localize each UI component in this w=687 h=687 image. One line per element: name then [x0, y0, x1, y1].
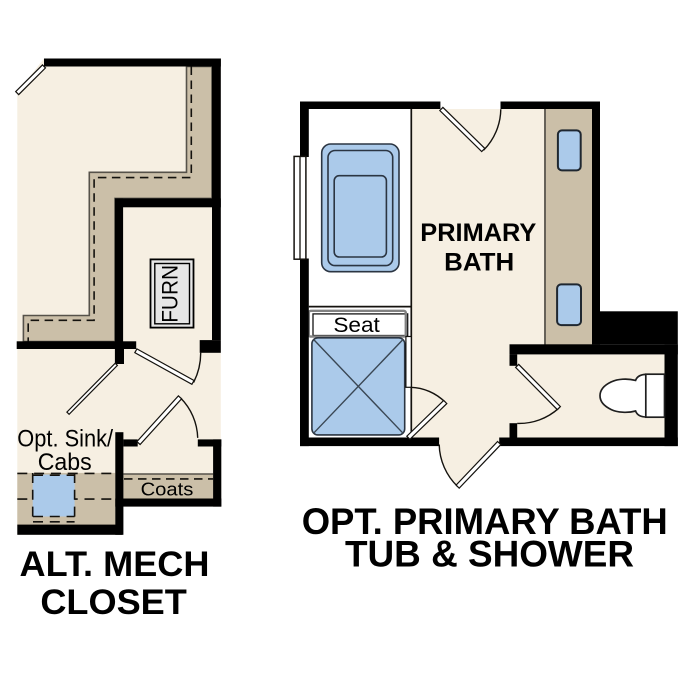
svg-text:BATH: BATH [444, 249, 514, 277]
svg-text:TUB & SHOWER: TUB & SHOWER [345, 534, 634, 575]
svg-text:CLOSET: CLOSET [40, 582, 187, 622]
svg-text:Opt. Sink/: Opt. Sink/ [17, 427, 113, 453]
svg-text:PRIMARY: PRIMARY [420, 219, 536, 247]
svg-text:ALT. MECH: ALT. MECH [20, 544, 210, 584]
svg-text:Coats: Coats [141, 479, 194, 499]
svg-text:Cabs: Cabs [38, 450, 92, 476]
svg-text:FURN: FURN [157, 265, 182, 323]
svg-text:Seat: Seat [333, 312, 380, 337]
